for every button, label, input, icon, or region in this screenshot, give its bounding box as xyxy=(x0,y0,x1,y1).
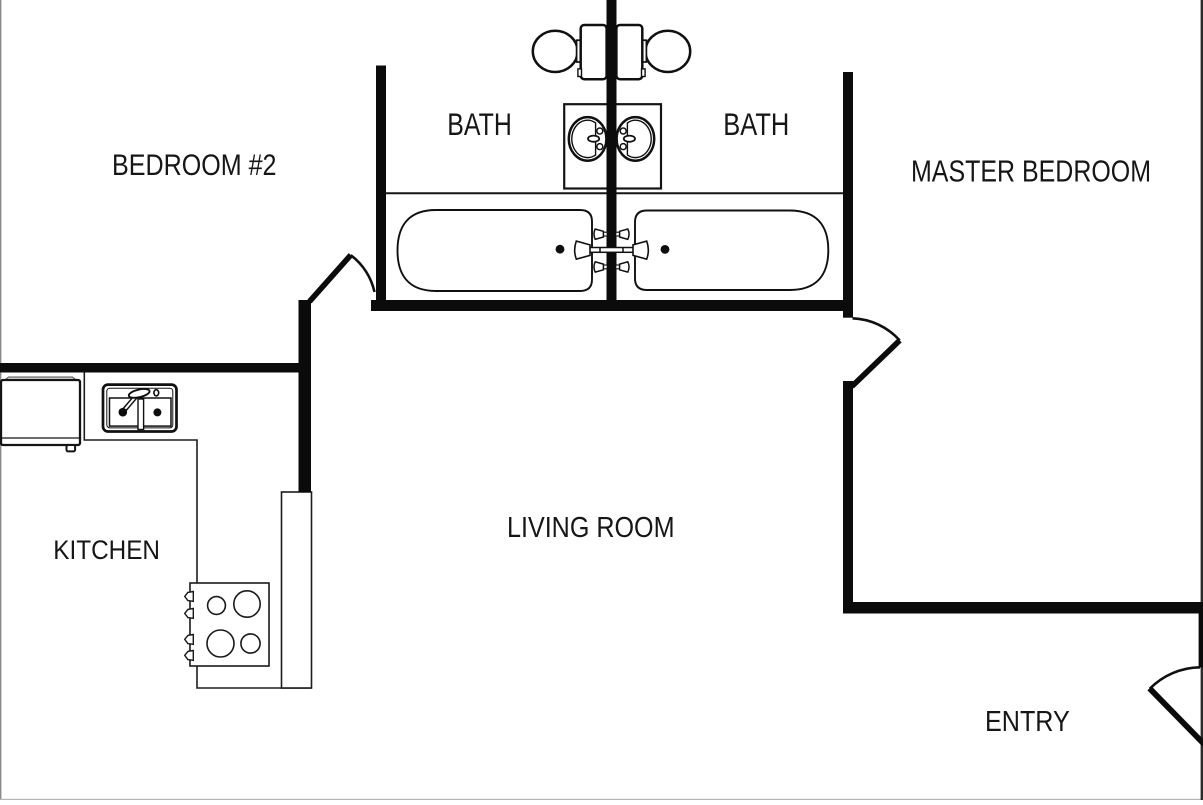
svg-text:BATH: BATH xyxy=(723,106,789,142)
svg-text:KITCHEN: KITCHEN xyxy=(53,535,160,565)
svg-text:ENTRY: ENTRY xyxy=(985,706,1070,738)
svg-text:LIVING ROOM: LIVING ROOM xyxy=(507,512,675,544)
svg-text:BEDROOM #2: BEDROOM #2 xyxy=(112,149,277,182)
svg-text:MASTER BEDROOM: MASTER BEDROOM xyxy=(911,154,1151,189)
svg-text:BATH: BATH xyxy=(447,106,512,142)
